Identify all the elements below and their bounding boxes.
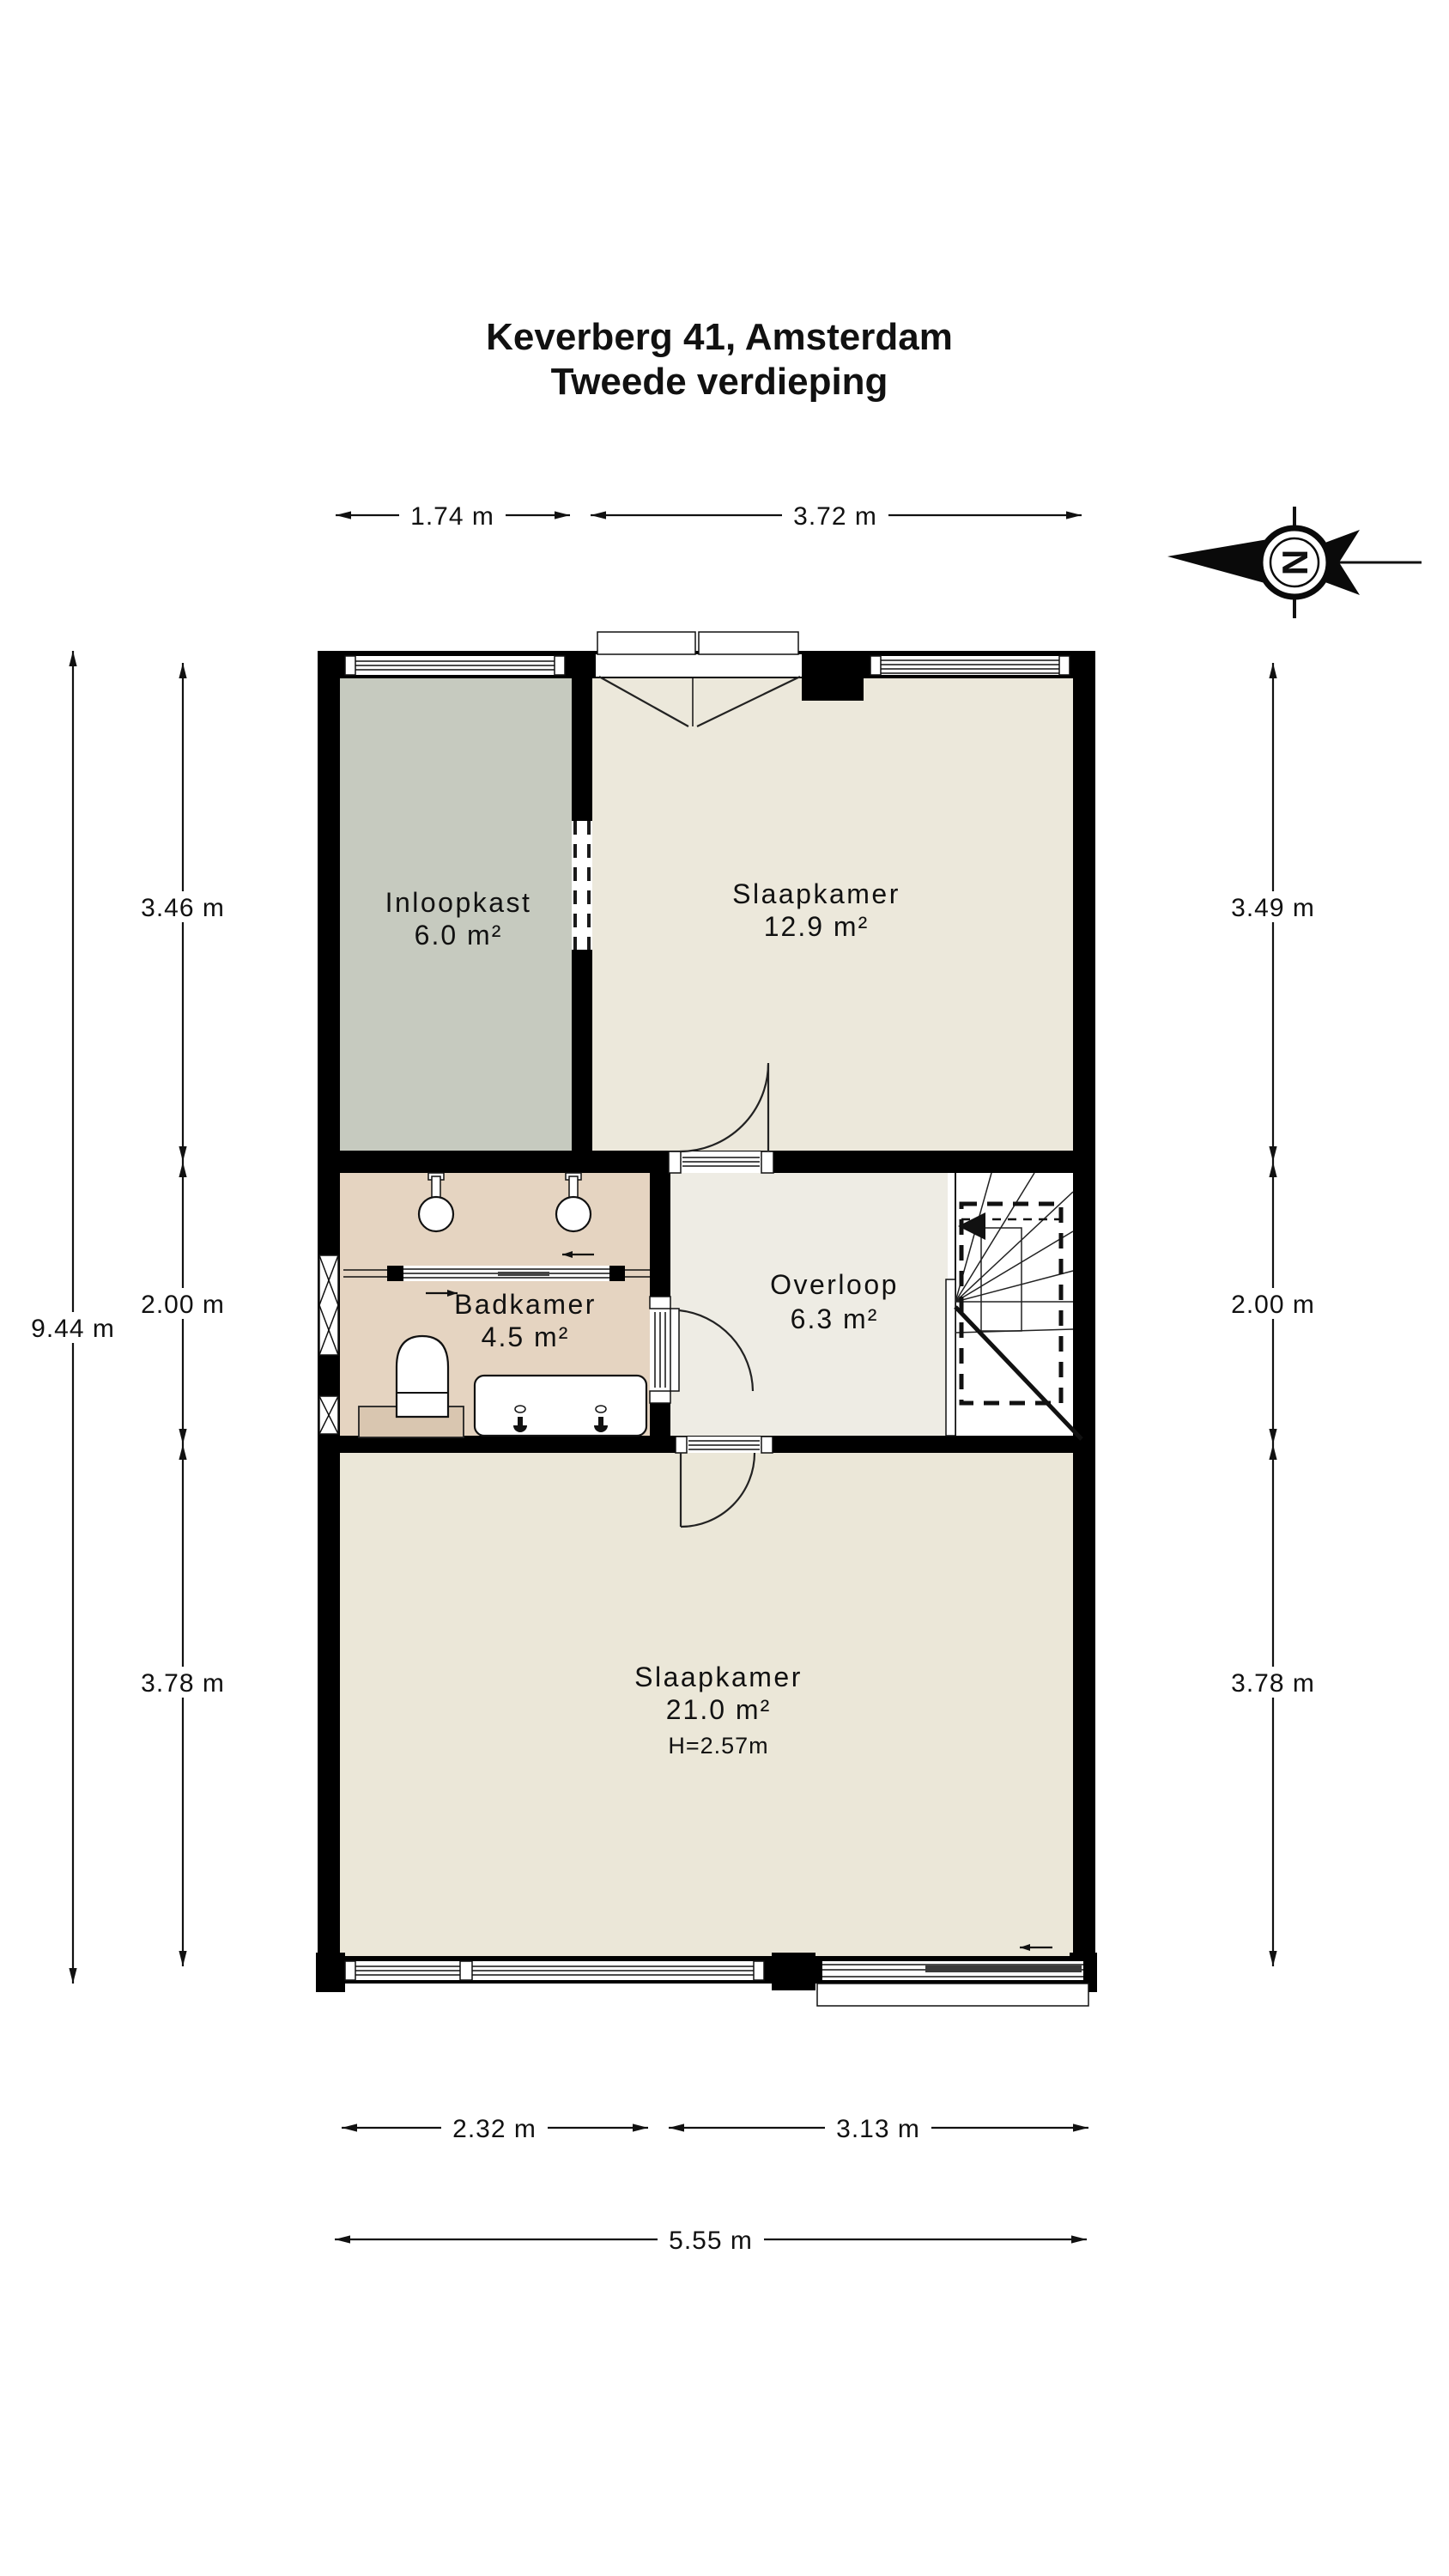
door-leaf (670, 1309, 679, 1391)
left-wall-windows (319, 1255, 338, 1434)
plan-title: Keverberg 41, Amsterdam Tweede verdiepin… (486, 316, 953, 403)
dim-left-total: 9.44 m (31, 1315, 115, 1343)
dim-bottom-2: 3.13 m (836, 2115, 920, 2143)
dim-left-3: 3.78 m (141, 1669, 225, 1698)
dim-right-1: 3.49 m (1231, 894, 1315, 922)
compass-needle (1167, 539, 1268, 584)
sliding-door-badkamer (343, 1266, 650, 1281)
badkamer-label: Badkamer (454, 1289, 597, 1320)
slaapkamer-top-label: Slaapkamer (732, 878, 900, 909)
balcony-doors-slaapkamer (596, 654, 802, 677)
dim-right-3: 3.78 m (1231, 1669, 1315, 1698)
title-line1: Keverberg 41, Amsterdam (486, 316, 953, 358)
badkamer-area: 4.5 m² (482, 1321, 570, 1352)
dim-left-2: 2.00 m (141, 1291, 225, 1319)
dim-right-2: 2.00 m (1231, 1291, 1315, 1319)
compass-north-icon: N (1167, 507, 1422, 618)
overloop-area: 6.3 m² (791, 1303, 879, 1334)
dim-top-1: 1.74 m (410, 502, 494, 531)
slaapkamer-bottom-area: 21.0 m² (666, 1694, 771, 1725)
sliding-panel (925, 1965, 1082, 1972)
floorplan-drawing: Keverberg 41, Amsterdam Tweede verdiepin… (0, 0, 1449, 2576)
balcony-sill (817, 1984, 1088, 2006)
inloopkast-label: Inloopkast (385, 887, 532, 918)
window-slaapkamer-top (870, 656, 1070, 675)
closet-divider-dashed-opening (572, 821, 592, 950)
wall-pier-bottom (772, 1953, 815, 1990)
overloop-label: Overloop (770, 1269, 899, 1300)
slaapkamer-top-area: 12.9 m² (764, 911, 869, 942)
title-line2: Tweede verdieping (551, 361, 888, 403)
slaapkamer-bottom-label: Slaapkamer (634, 1662, 803, 1692)
dim-top-2: 3.72 m (793, 502, 877, 531)
wall-pier-top (802, 659, 864, 701)
dim-bottom-total: 5.55 m (669, 2227, 753, 2255)
inloopkast-area: 6.0 m² (415, 920, 503, 951)
dim-bottom-1: 2.32 m (452, 2115, 537, 2143)
floorplan-page: Keverberg 41, Amsterdam Tweede verdiepin… (0, 0, 1449, 2576)
compass-letter: N (1275, 550, 1315, 575)
slaapkamer-bottom-height: H=2.57m (668, 1733, 768, 1759)
bathtub-icon (475, 1376, 646, 1436)
dim-left-1: 3.46 m (141, 894, 225, 922)
